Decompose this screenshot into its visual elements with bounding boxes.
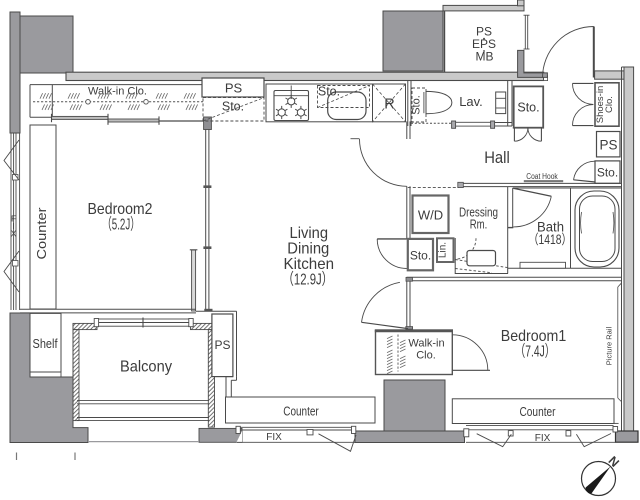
svg-text:Hall: Hall xyxy=(484,148,510,167)
svg-text:Shelf: Shelf xyxy=(33,337,58,351)
svg-text:（7.4J）: （7.4J） xyxy=(515,343,555,361)
svg-text:Sto.: Sto. xyxy=(410,249,431,263)
svg-text:Picture Rail: Picture Rail xyxy=(605,327,614,366)
svg-text:Sto.: Sto. xyxy=(318,85,340,99)
svg-text:Sto.: Sto. xyxy=(222,100,244,114)
svg-text:FIX: FIX xyxy=(535,433,551,444)
svg-text:PS: PS xyxy=(599,138,617,153)
svg-text:Sto.: Sto. xyxy=(411,95,423,115)
svg-text:PS: PS xyxy=(225,81,243,96)
svg-text:Kitchen: Kitchen xyxy=(284,256,335,273)
svg-text:Lin.: Lin. xyxy=(438,242,449,258)
svg-text:Living: Living xyxy=(290,225,329,242)
svg-text:Sto.: Sto. xyxy=(597,166,618,180)
svg-text:Sto.: Sto. xyxy=(517,101,539,115)
svg-text:Rm.: Rm. xyxy=(470,217,488,232)
svg-text:Counter: Counter xyxy=(283,404,319,419)
svg-text:Bedroom2: Bedroom2 xyxy=(88,201,153,218)
svg-text:Bedroom1: Bedroom1 xyxy=(501,328,567,345)
svg-text:Counter: Counter xyxy=(35,208,49,260)
svg-text:（5.2J）: （5.2J） xyxy=(102,216,140,234)
svg-text:FIX: FIX xyxy=(266,432,282,443)
svg-text:Clo.: Clo. xyxy=(416,350,436,362)
svg-text:PS: PS xyxy=(214,338,230,352)
svg-text:Walk-in: Walk-in xyxy=(408,338,444,350)
svg-text:Clo.: Clo. xyxy=(604,96,615,113)
svg-text:W/D: W/D xyxy=(418,208,443,223)
svg-text:R: R xyxy=(384,97,394,113)
svg-text:Coat Hook: Coat Hook xyxy=(526,172,558,181)
svg-text:Balcony: Balcony xyxy=(120,359,172,376)
svg-text:（1418）: （1418） xyxy=(528,232,572,247)
svg-text:Counter: Counter xyxy=(520,404,557,419)
svg-text:Lav.: Lav. xyxy=(459,94,483,109)
svg-text:（12.9J）: （12.9J） xyxy=(283,271,334,289)
svg-text:X: X xyxy=(11,229,17,239)
svg-text:Dining: Dining xyxy=(287,241,329,258)
svg-text:Walk-in Clo.: Walk-in Clo. xyxy=(88,86,147,98)
